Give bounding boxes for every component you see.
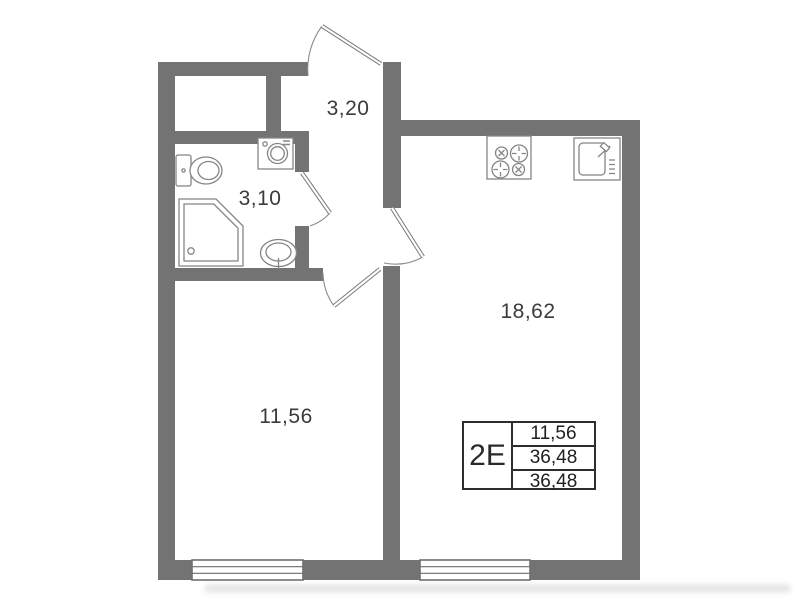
bathroom-area-label: 3,10: [239, 187, 282, 211]
doors: [302, 26, 423, 306]
kitchen-living-area-label: 18,62: [500, 300, 555, 324]
floor-plan: 3,20 3,10 11,56 18,62 2E 11,56 36,48 36,…: [0, 0, 799, 600]
walls: [158, 62, 640, 580]
total-area-value: 36,48: [513, 445, 594, 469]
wall-top: [158, 62, 308, 76]
wall-bottom-right: [530, 560, 640, 580]
wall-kitchen-top: [383, 120, 640, 136]
wall-bathroom-right-upper: [295, 144, 309, 172]
bathroom-sink-icon: [261, 240, 297, 270]
living-room-door-icon: [323, 269, 380, 306]
unit-type-cell: 2E: [464, 423, 513, 488]
kitchen-door-icon: [384, 208, 423, 264]
unit-summary-table: 2E 11,56 36,48 36,48: [462, 421, 596, 490]
toilet-icon: [176, 155, 222, 186]
shower-icon: [179, 199, 243, 266]
living-room-area-label: 11,56: [259, 405, 313, 429]
window-right: [420, 560, 530, 580]
wall-bottom-mid: [303, 560, 420, 580]
wall-right: [622, 120, 640, 580]
wall-bottom-left: [158, 560, 193, 580]
living-area-value: 11,56: [513, 423, 594, 445]
wall-room-divider: [383, 266, 400, 562]
entrance-door-icon: [308, 26, 381, 76]
wall-bathroom-bottom: [158, 268, 323, 281]
floor-plan-drawing: [0, 0, 799, 600]
bathroom-door-icon: [302, 173, 330, 226]
overall-area-value: 36,48: [513, 469, 594, 493]
wall-bathroom-right-lower: [295, 226, 309, 268]
washing-machine-icon: [258, 138, 293, 169]
stove-icon: [487, 136, 531, 179]
unit-areas-column: 11,56 36,48 36,48: [513, 423, 594, 488]
hallway-area-label: 3,20: [327, 97, 370, 121]
wall-closet-right: [266, 62, 281, 131]
window-left: [192, 560, 303, 580]
kitchen-sink-icon: [574, 138, 620, 180]
bottom-shadow: [205, 585, 790, 592]
